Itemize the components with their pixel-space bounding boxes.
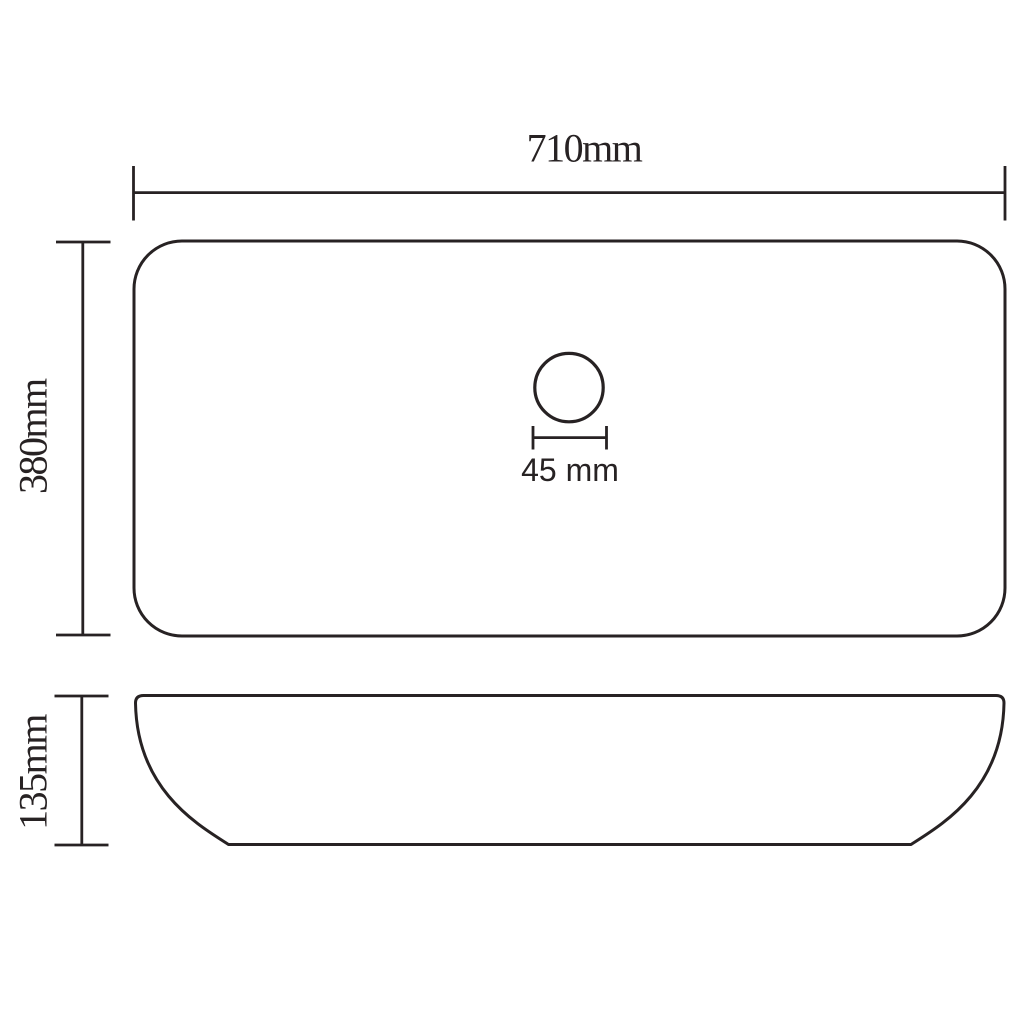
- svg-text:135mm: 135mm: [11, 714, 56, 830]
- svg-text:380mm: 380mm: [11, 378, 56, 494]
- svg-text:45 mm: 45 mm: [521, 452, 619, 488]
- svg-text:710mm: 710mm: [527, 126, 643, 171]
